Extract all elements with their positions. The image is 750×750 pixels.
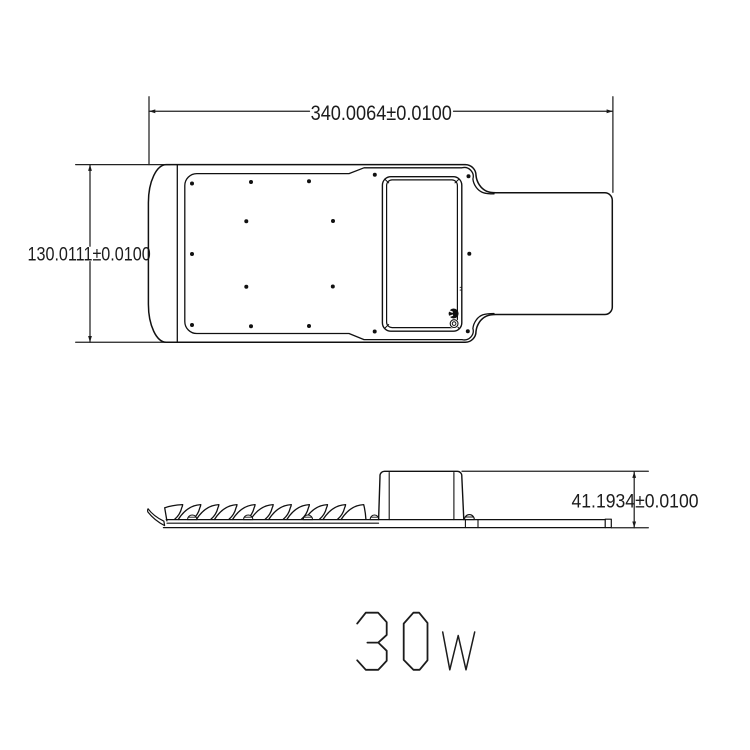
svg-text:130.0111±0.0100: 130.0111±0.0100 (28, 245, 151, 266)
svg-text:41.1934±0.0100: 41.1934±0.0100 (572, 492, 699, 513)
svg-text:340.0064±0.0100: 340.0064±0.0100 (311, 102, 452, 125)
